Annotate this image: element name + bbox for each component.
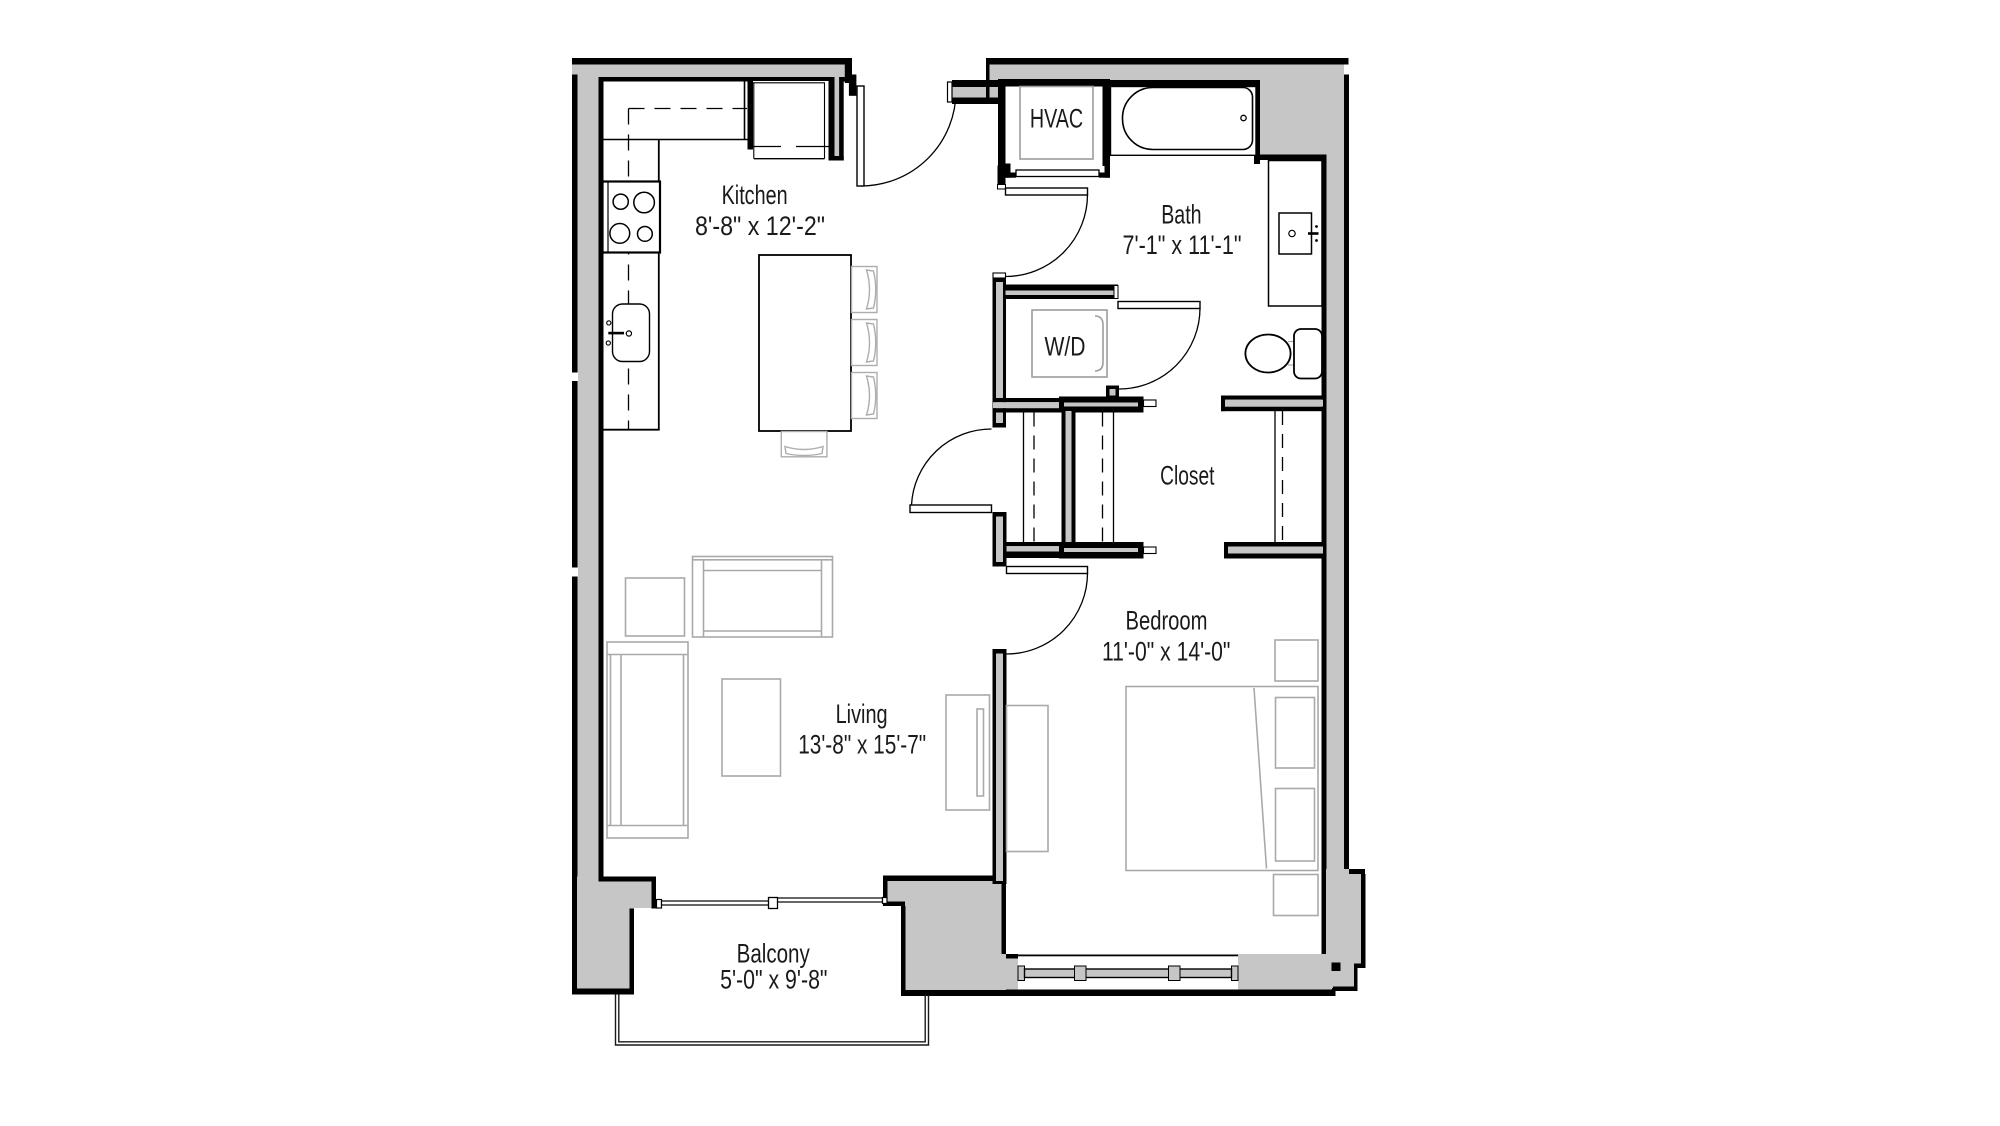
svg-text:8'-8" x 12'-2": 8'-8" x 12'-2" (695, 211, 825, 241)
svg-text:Bedroom: Bedroom (1126, 606, 1208, 636)
svg-text:Bath: Bath (1161, 200, 1201, 230)
svg-text:5'-0" x 9'-8": 5'-0" x 9'-8" (720, 965, 827, 995)
svg-text:W/D: W/D (1045, 332, 1086, 362)
svg-text:7'-1" x 11'-1": 7'-1" x 11'-1" (1123, 230, 1242, 260)
svg-text:11'-0" x 14'-0": 11'-0" x 14'-0" (1102, 637, 1231, 667)
svg-text:Living: Living (836, 699, 888, 729)
svg-text:13'-8" x 15'-7": 13'-8" x 15'-7" (798, 729, 926, 759)
svg-text:Kitchen: Kitchen (722, 180, 788, 210)
svg-text:HVAC: HVAC (1030, 104, 1083, 134)
svg-text:Closet: Closet (1160, 461, 1215, 491)
